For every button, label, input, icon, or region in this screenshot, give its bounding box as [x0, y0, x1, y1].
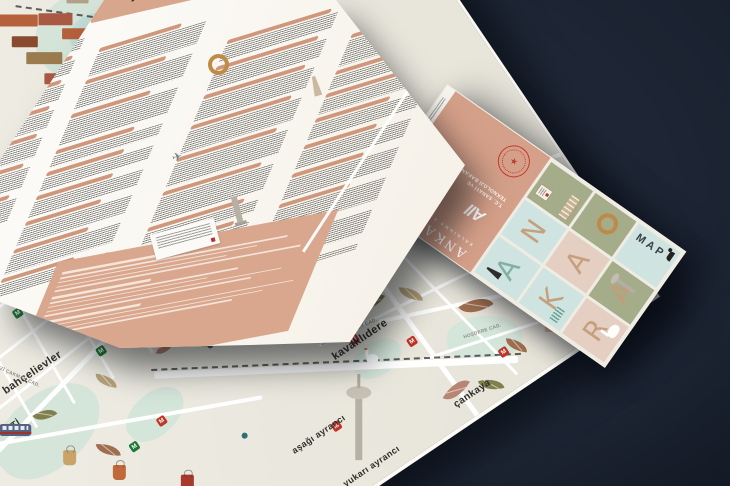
- shopping-bag-icon: [63, 450, 76, 465]
- agency-logo: All: [463, 199, 490, 226]
- tree-icon: [203, 223, 220, 245]
- simit-icon: [593, 209, 622, 238]
- government-seal-icon: ★: [492, 139, 537, 184]
- district-label: aşağı ayrancı: [290, 413, 347, 456]
- tree-icon: [362, 289, 384, 313]
- seal-star-icon: ★: [507, 155, 521, 168]
- map-label: MAP: [634, 232, 668, 261]
- atakule-pole: [355, 396, 362, 460]
- ministry-line1: T.C. SANAYİ VE: [429, 152, 505, 208]
- tree-icon: [302, 275, 330, 293]
- ministry-label: T.C. SANAYİ VE TEKNOLOJİ BAKANLIĞI: [429, 147, 509, 209]
- tree-icon: [399, 287, 423, 300]
- historic-building-illustration: [96, 100, 124, 111]
- historic-building-illustration: [0, 15, 38, 27]
- historic-building-illustration: [38, 13, 72, 25]
- asti-bus-illustration: [0, 424, 31, 436]
- tree-icon: [96, 443, 121, 458]
- shopping-bag-icon: [113, 465, 126, 480]
- car-illustration: [96, 25, 111, 31]
- road: [217, 26, 456, 134]
- tree-icon: [193, 333, 216, 351]
- atakule-tower-illustration: [341, 372, 375, 464]
- metro-station-icon: M: [128, 440, 140, 452]
- historic-building-illustration: [44, 73, 74, 84]
- shopping-bag-icon: [181, 475, 194, 486]
- poi-dot-icon: [240, 431, 248, 439]
- swan-illustration: [366, 354, 378, 363]
- historic-building-illustration: [61, 93, 93, 105]
- photo-scene: MMMMMMMMMMMbahçelievlerkavaklıdereçankay…: [0, 0, 730, 486]
- atakule-spire: [357, 374, 360, 388]
- historic-building-illustration: [67, 0, 89, 3]
- ministry-line2: TEKNOLOJİ BAKANLIĞI: [432, 147, 508, 203]
- poi-dot-icon: [290, 211, 298, 219]
- anitkabir-icon: [558, 194, 579, 219]
- historic-building-illustration: [62, 28, 90, 39]
- historic-building-illustration: [12, 36, 38, 47]
- street-label: BÜLBÜLDERESİ CAD.: [268, 299, 322, 320]
- hanging-sign-icon: [536, 184, 553, 200]
- car-illustration: [100, 80, 115, 86]
- historic-building-illustration: [26, 52, 62, 64]
- historic-building-illustration: [93, 135, 123, 146]
- historic-building-illustration: [73, 53, 99, 63]
- street-label: ESAT CAD.: [341, 271, 369, 285]
